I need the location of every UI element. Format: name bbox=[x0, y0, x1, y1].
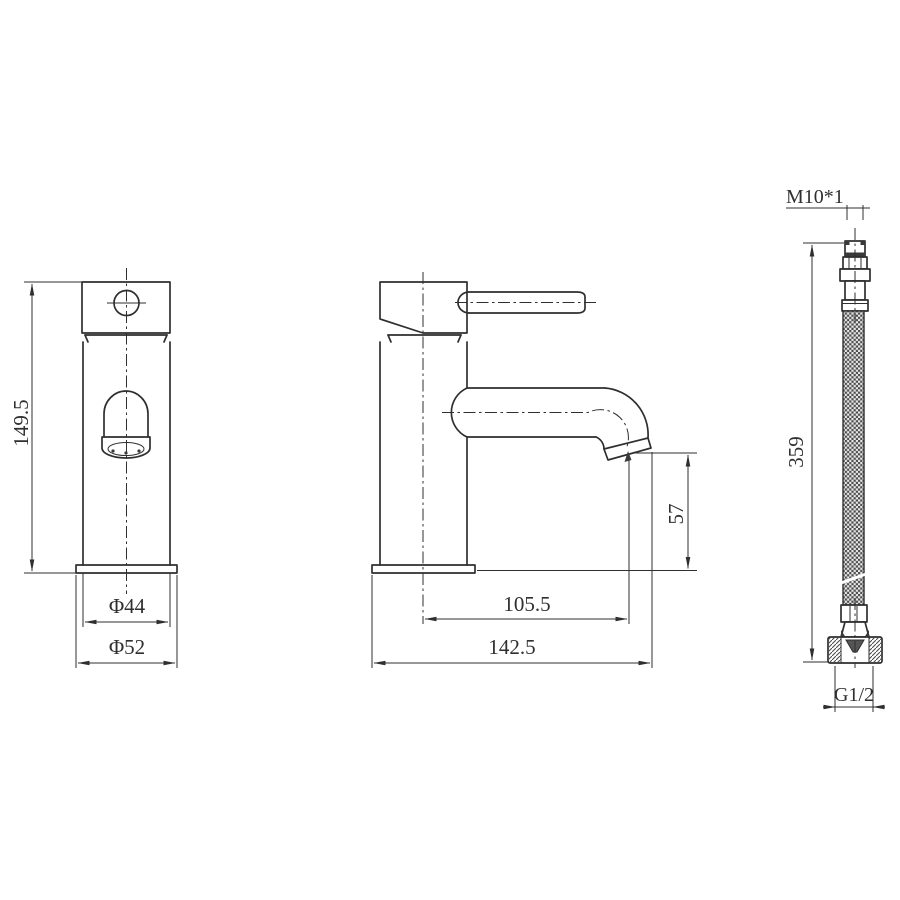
hose-braid bbox=[841, 311, 866, 605]
side-view bbox=[372, 272, 651, 624]
side-collar bbox=[388, 335, 461, 342]
spout-centerline bbox=[442, 410, 628, 449]
dim-overall-depth: 142.5 bbox=[488, 635, 535, 659]
side-spout bbox=[442, 388, 651, 462]
dim-hose-length: 359 bbox=[784, 436, 808, 468]
front-view bbox=[76, 268, 177, 594]
dim-top-thread: M10*1 bbox=[786, 186, 844, 208]
outlet-center-arrow bbox=[625, 451, 632, 462]
dim-spout-height: 57 bbox=[664, 504, 688, 525]
front-view-dimensions: 149.5 Φ44 Φ52 bbox=[9, 282, 177, 668]
dim-bottom-thread: G1/2 bbox=[834, 684, 874, 706]
dim-spout-reach: 105.5 bbox=[503, 592, 550, 616]
side-view-dimensions: 57 105.5 142.5 bbox=[372, 452, 697, 668]
dim-front-height: 149.5 bbox=[9, 399, 33, 446]
dim-body-diameter: Φ44 bbox=[109, 594, 146, 618]
dim-base-diameter: Φ52 bbox=[109, 635, 145, 659]
faucet-technical-drawing: 149.5 Φ44 Φ52 bbox=[0, 0, 900, 900]
side-handle-lever bbox=[455, 292, 598, 313]
hose-view: M10*1 bbox=[784, 186, 885, 712]
technical-drawing-canvas: 149.5 Φ44 Φ52 bbox=[0, 0, 900, 900]
